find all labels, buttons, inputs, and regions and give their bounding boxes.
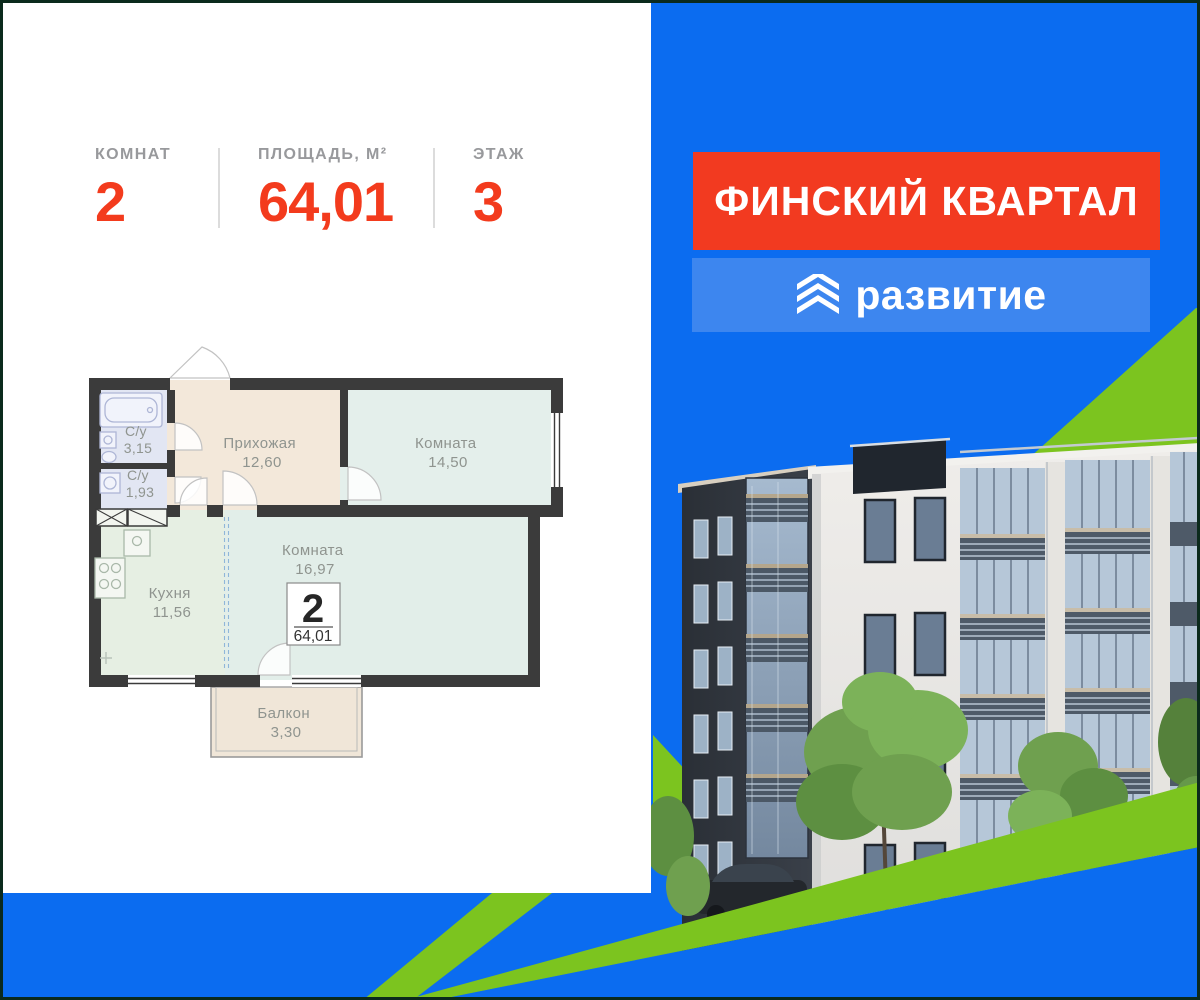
summary-box: 2 64,01 (287, 583, 340, 645)
summary-area: 64,01 (294, 628, 333, 645)
project-name-banner: ФИНСКИЙ КВАРТАЛ (693, 152, 1160, 250)
triple-chevron-icon (795, 274, 841, 316)
stat-area-value: 64,01 (258, 174, 393, 230)
room-balcony (211, 687, 362, 757)
stat-divider (433, 148, 435, 228)
developer-name: развитие (855, 272, 1046, 319)
developer-banner: развитие (692, 258, 1150, 332)
label-wc1: С/у 3,15 (124, 423, 152, 456)
stat-floor-label: ЭТАЖ (473, 146, 525, 164)
closets (96, 509, 167, 526)
entry-door-arc (170, 347, 230, 378)
roof-canopy (853, 440, 946, 494)
stat-rooms-label: КОМНАТ (95, 146, 171, 164)
stat-floor-value: 3 (473, 174, 525, 230)
stat-rooms-value: 2 (95, 174, 171, 230)
flyer-canvas: КОМНАТ 2 ПЛОЩАДЬ, М² 64,01 ЭТАЖ 3 (0, 0, 1200, 1000)
stat-rooms: КОМНАТ 2 (95, 146, 171, 230)
floor-plan: С/у 3,15 С/у 1,93 Прихожая 12,60 Комната… (80, 340, 580, 770)
stat-floor: ЭТАЖ 3 (473, 146, 525, 230)
label-wc2: С/у 1,93 (126, 467, 154, 500)
project-name: ФИНСКИЙ КВАРТАЛ (714, 178, 1138, 225)
apartment-card: КОМНАТ 2 ПЛОЩАДЬ, М² 64,01 ЭТАЖ 3 (0, 0, 651, 893)
stat-area-label: ПЛОЩАДЬ, М² (258, 146, 393, 164)
stat-divider (218, 148, 220, 228)
stat-area: ПЛОЩАДЬ, М² 64,01 (258, 146, 393, 230)
summary-rooms: 2 (302, 587, 324, 631)
